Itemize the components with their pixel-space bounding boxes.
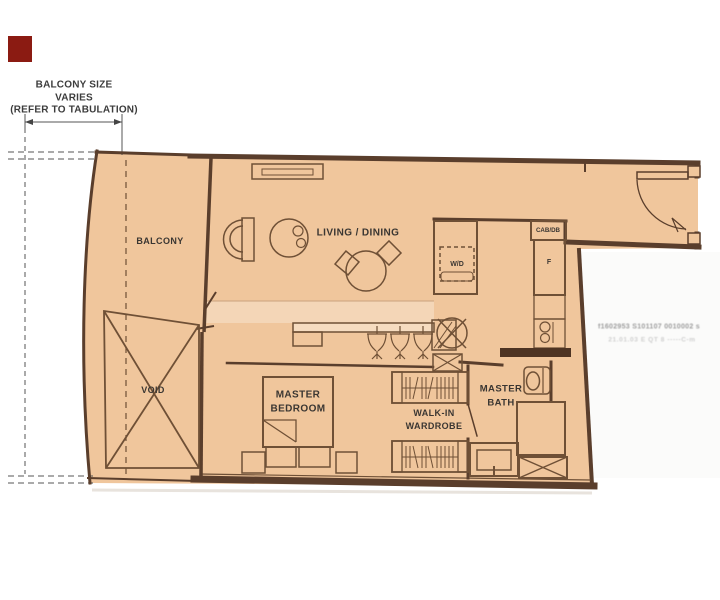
living-dining-label: LIVING / DINING [317, 227, 400, 240]
void-label: VOID [141, 384, 165, 396]
master-bath-label: MASTER BATH [480, 383, 523, 410]
cab-db-label: CAB/DB [536, 225, 560, 237]
watermark-line2: 21.01.03 E QT 8 -----C-m [608, 337, 695, 344]
walk-in-wardrobe-label: WALK-IN WARDROBE [406, 407, 463, 433]
bath-vanity-counter-bar [500, 348, 571, 357]
watermark-panel [579, 252, 720, 478]
red-marker [8, 36, 32, 62]
watermark-line1: f1602953 S101107 0010002 s [598, 324, 700, 331]
fridge-label: F [547, 257, 551, 269]
floorplan-page: BALCONY SIZE VARIES (REFER TO TABULATION… [0, 0, 720, 600]
balcony-label: BALCONY [136, 235, 183, 247]
master-bedroom-label: MASTER BEDROOM [270, 389, 325, 416]
washer-dryer-label: W/D [450, 259, 464, 271]
kitchen-counter-band [206, 301, 434, 323]
balcony-size-note: BALCONY SIZE VARIES (REFER TO TABULATION… [10, 79, 138, 117]
plan-shadow [92, 490, 592, 493]
